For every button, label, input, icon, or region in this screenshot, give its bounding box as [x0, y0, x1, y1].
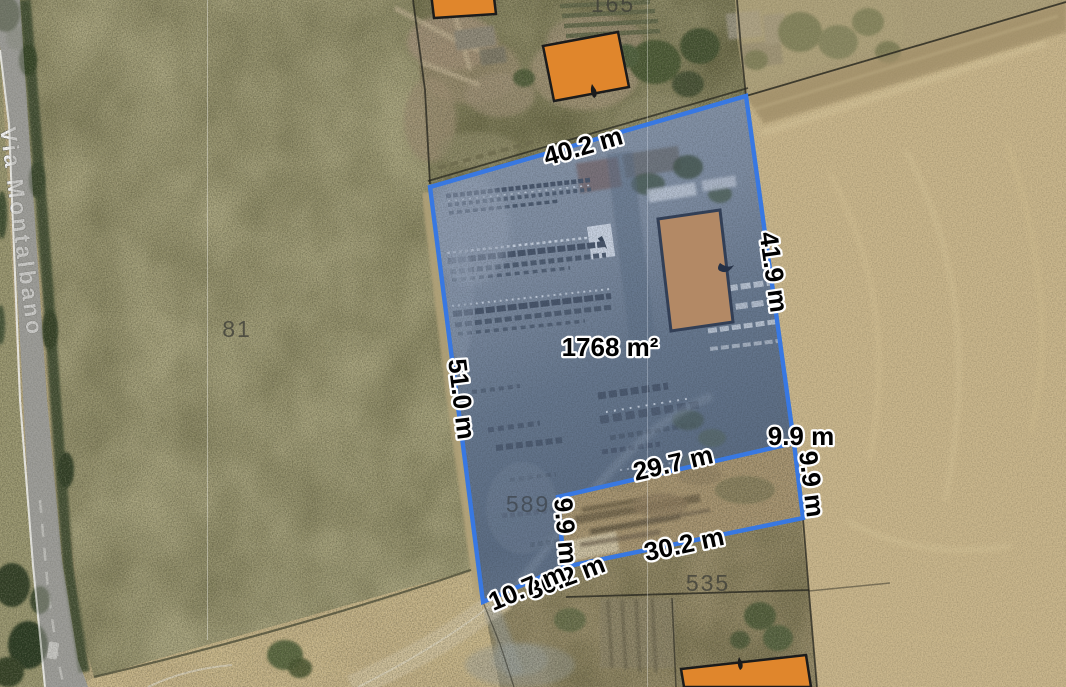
- svg-text:165: 165: [591, 0, 635, 17]
- svg-text:1768 m²: 1768 m²: [562, 332, 659, 362]
- svg-text:535: 535: [686, 570, 730, 596]
- svg-text:9.9 m: 9.9 m: [768, 421, 835, 451]
- svg-text:81: 81: [222, 316, 252, 342]
